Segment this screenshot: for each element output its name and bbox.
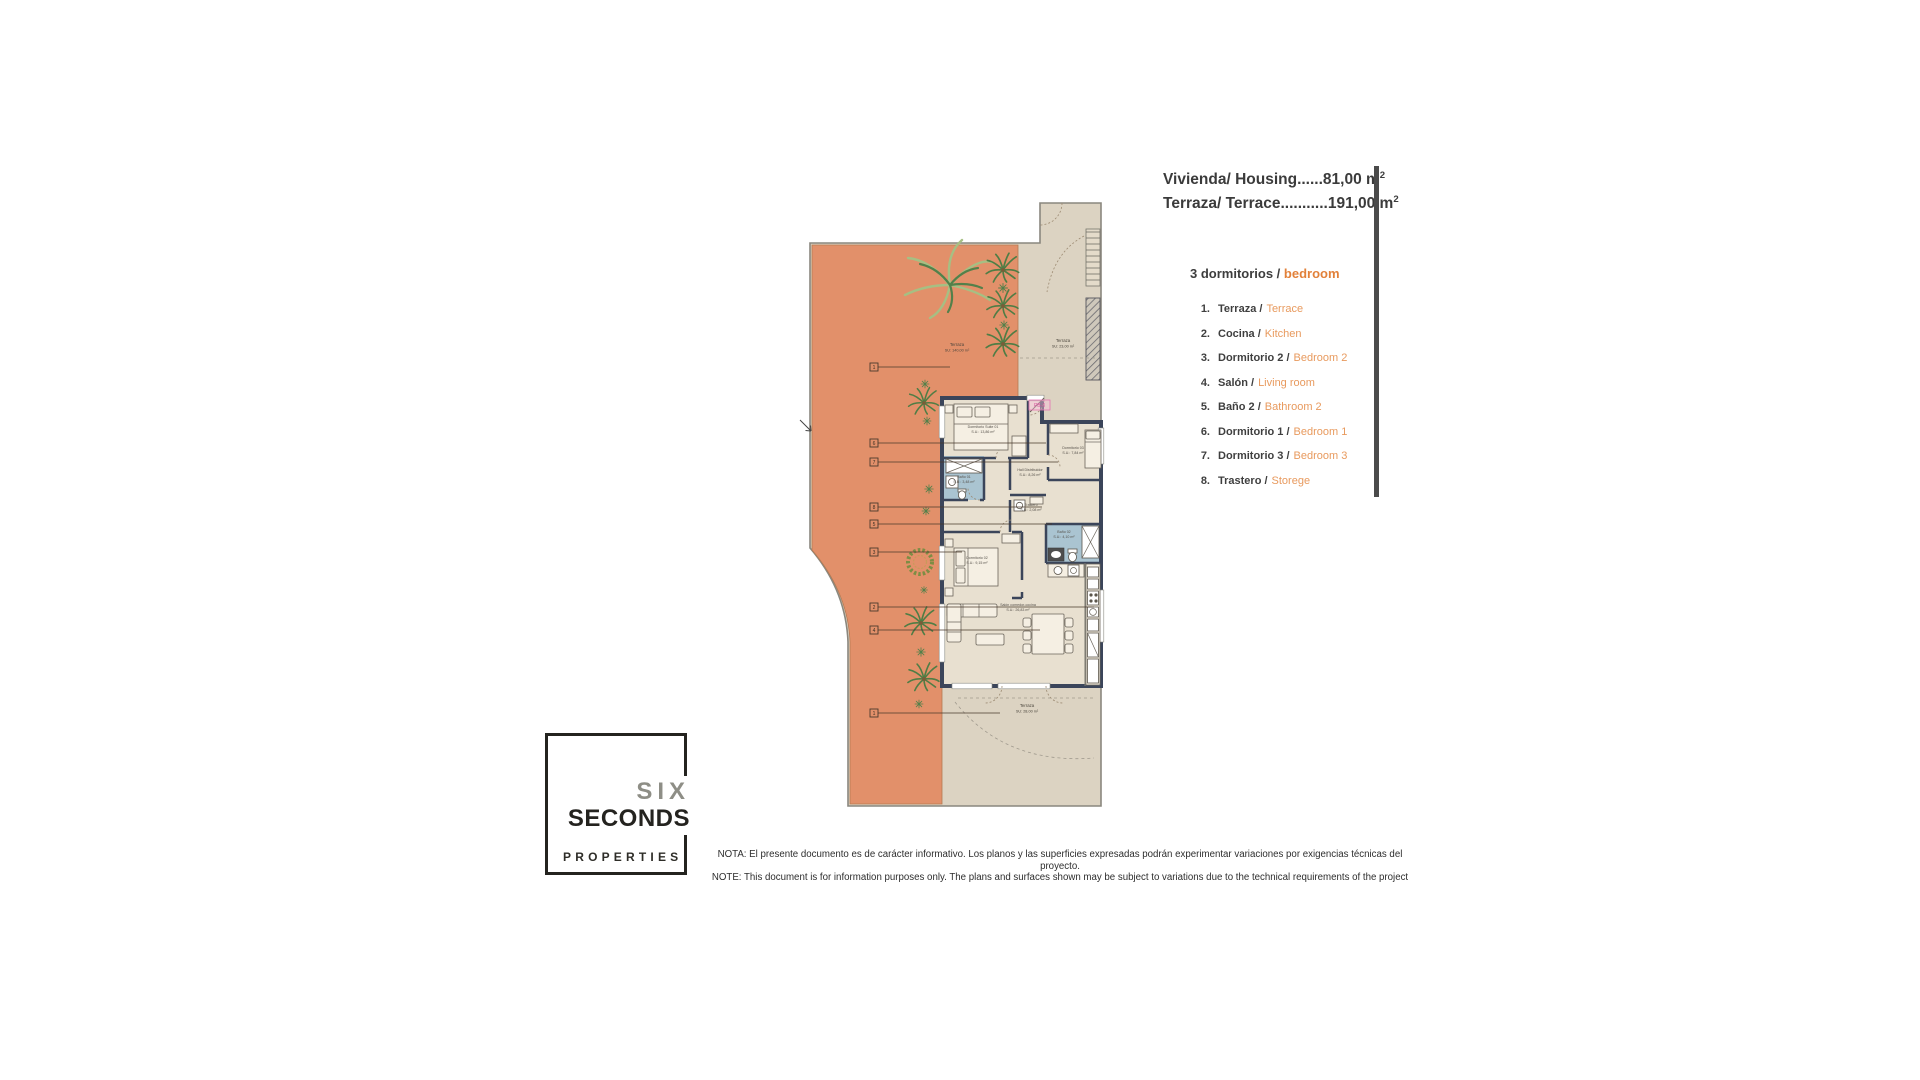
room-bath1-name: Baño 01 bbox=[957, 475, 970, 479]
room-suite-name: Dormitorio Suite 01 bbox=[968, 425, 999, 429]
legend-list: 1.Terraza /Terrace 2.Cocina /Kitchen 3.D… bbox=[1196, 303, 1347, 499]
marker: 8 bbox=[873, 505, 876, 511]
legend-title-en: bedroom bbox=[1284, 266, 1340, 281]
terrace-area-line: Terraza/ Terrace...........191,00 m2 bbox=[1163, 190, 1399, 214]
marker: 6 bbox=[873, 441, 876, 447]
legend-item: 3.Dormitorio 2 /Bedroom 2 bbox=[1196, 352, 1347, 377]
marker: 1 bbox=[873, 365, 876, 371]
logo-properties: PROPERTIES bbox=[563, 850, 682, 864]
room-storage-name: Trastero bbox=[1024, 503, 1037, 507]
room-bedroom3-name: Dormitorio 03 bbox=[1062, 446, 1084, 450]
floor-plan: PB-3 Terraza SU: 140,00 m² Terraza SU: 2… bbox=[798, 190, 1115, 815]
unit-tag-label: PB-3 bbox=[1034, 403, 1045, 409]
marker: 7 bbox=[873, 460, 876, 466]
legend-item: 6.Dormitorio 1 /Bedroom 1 bbox=[1196, 426, 1347, 451]
terrace-bottom-name: Terraza bbox=[1020, 703, 1035, 708]
logo-seconds: SECONDS bbox=[568, 805, 690, 832]
legend-title-es: 3 dormitorios / bbox=[1190, 266, 1280, 281]
marker: 3 bbox=[873, 550, 876, 556]
disclaimer-en: NOTE: This document is for information p… bbox=[705, 872, 1415, 884]
marker: 4 bbox=[873, 628, 876, 634]
unit-tag: PB-3 bbox=[1029, 400, 1050, 410]
page: PB-3 Terraza SU: 140,00 m² Terraza SU: 2… bbox=[0, 0, 1920, 1080]
room-storage-area: S.U.: 2,08 m² bbox=[1020, 508, 1042, 512]
legend-item: 2.Cocina /Kitchen bbox=[1196, 328, 1347, 353]
room-bath1-area: S.U.: 3,48 m² bbox=[953, 480, 975, 484]
room-bedroom3-area: S.U.: 7,84 m² bbox=[1062, 451, 1084, 455]
room-bath2-area: S.U.: 4,10 m² bbox=[1053, 535, 1075, 539]
stairs bbox=[1086, 229, 1100, 380]
terrace-bottom-area: SU: 28,00 m² bbox=[1016, 710, 1039, 714]
room-hall-name: Hall Distribuidor bbox=[1017, 468, 1043, 472]
room-living-area: S.U.: 26,83 m² bbox=[1006, 608, 1030, 612]
logo-six: SIX bbox=[568, 778, 690, 805]
marker: 1 bbox=[873, 711, 876, 717]
terrace-top-name: Terraza bbox=[950, 342, 965, 347]
area-summary: Vivienda/ Housing......81,00 m2 Terraza/… bbox=[1163, 166, 1399, 214]
legend-item: 1.Terraza /Terrace bbox=[1196, 303, 1347, 328]
terrace-top-area: SU: 140,00 m² bbox=[945, 349, 970, 353]
room-bath2-name: Baño 02 bbox=[1057, 530, 1070, 534]
room-bedroom2-name: Dormitorio 02 bbox=[966, 556, 988, 560]
room-hall-area: S.U.: 8,26 m² bbox=[1019, 473, 1041, 477]
housing-area-line: Vivienda/ Housing......81,00 m2 bbox=[1163, 166, 1399, 190]
marker: 2 bbox=[873, 605, 876, 611]
legend-item: 4.Salón /Living room bbox=[1196, 377, 1347, 402]
legend-item: 8.Trastero /Storege bbox=[1196, 475, 1347, 500]
page-edge-bar bbox=[1374, 166, 1379, 497]
logo-wordmark: SIX SECONDS bbox=[559, 776, 690, 835]
shaft-hatch bbox=[1086, 298, 1100, 380]
terrace-right-name: Terraza bbox=[1056, 338, 1071, 343]
room-living-name: Salón comedor-cocina bbox=[1000, 603, 1036, 607]
legend-item: 5.Baño 2 /Bathroom 2 bbox=[1196, 401, 1347, 426]
disclaimer-es: NOTA: El presente documento es de caráct… bbox=[705, 849, 1415, 872]
room-bedroom2-area: S.U.: 9,15 m² bbox=[966, 561, 988, 565]
room-suite-area: S.U.: 13,86 m² bbox=[971, 430, 995, 434]
marker: 5 bbox=[873, 522, 876, 528]
company-logo: SIX SECONDS PROPERTIES bbox=[545, 733, 687, 875]
terrace-right-area: SU: 23,00 m² bbox=[1052, 345, 1075, 349]
legend-title: 3 dormitorios / bedroom bbox=[1190, 266, 1340, 281]
legend-item: 7.Dormitorio 3 /Bedroom 3 bbox=[1196, 450, 1347, 475]
apartment bbox=[939, 395, 1104, 703]
disclaimer-note: NOTA: El presente documento es de caráct… bbox=[705, 849, 1415, 884]
